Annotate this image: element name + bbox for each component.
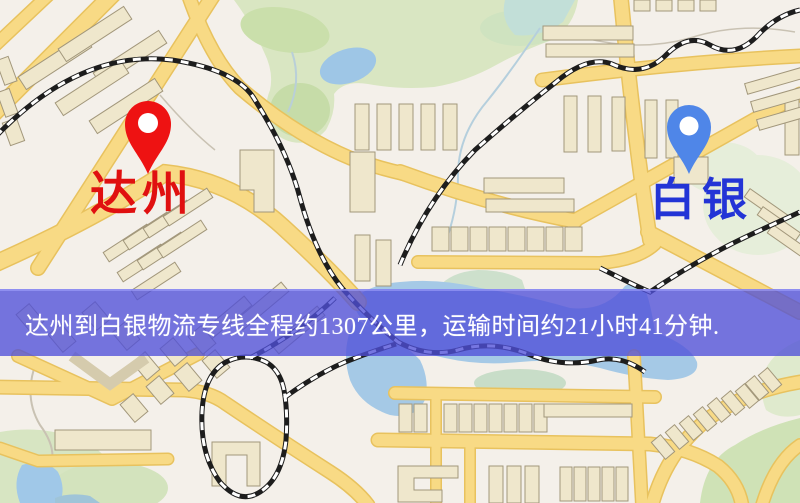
logistics-route-map: 达州 白银 达州到白银物流专线全程约1307公里，运输时间约21小时41分钟. — [0, 0, 800, 503]
red-pin-icon — [118, 96, 178, 178]
route-info-text: 达州到白银物流专线全程约1307公里，运输时间约21小时41分钟. — [25, 306, 720, 341]
route-info-banner: 达州到白银物流专线全程约1307公里，运输时间约21小时41分钟. — [0, 289, 800, 356]
destination-city-label: 白银 — [650, 178, 754, 223]
blue-pin-icon — [660, 100, 718, 178]
origin-city-label: 达州 — [90, 172, 194, 219]
map-background — [0, 0, 800, 503]
